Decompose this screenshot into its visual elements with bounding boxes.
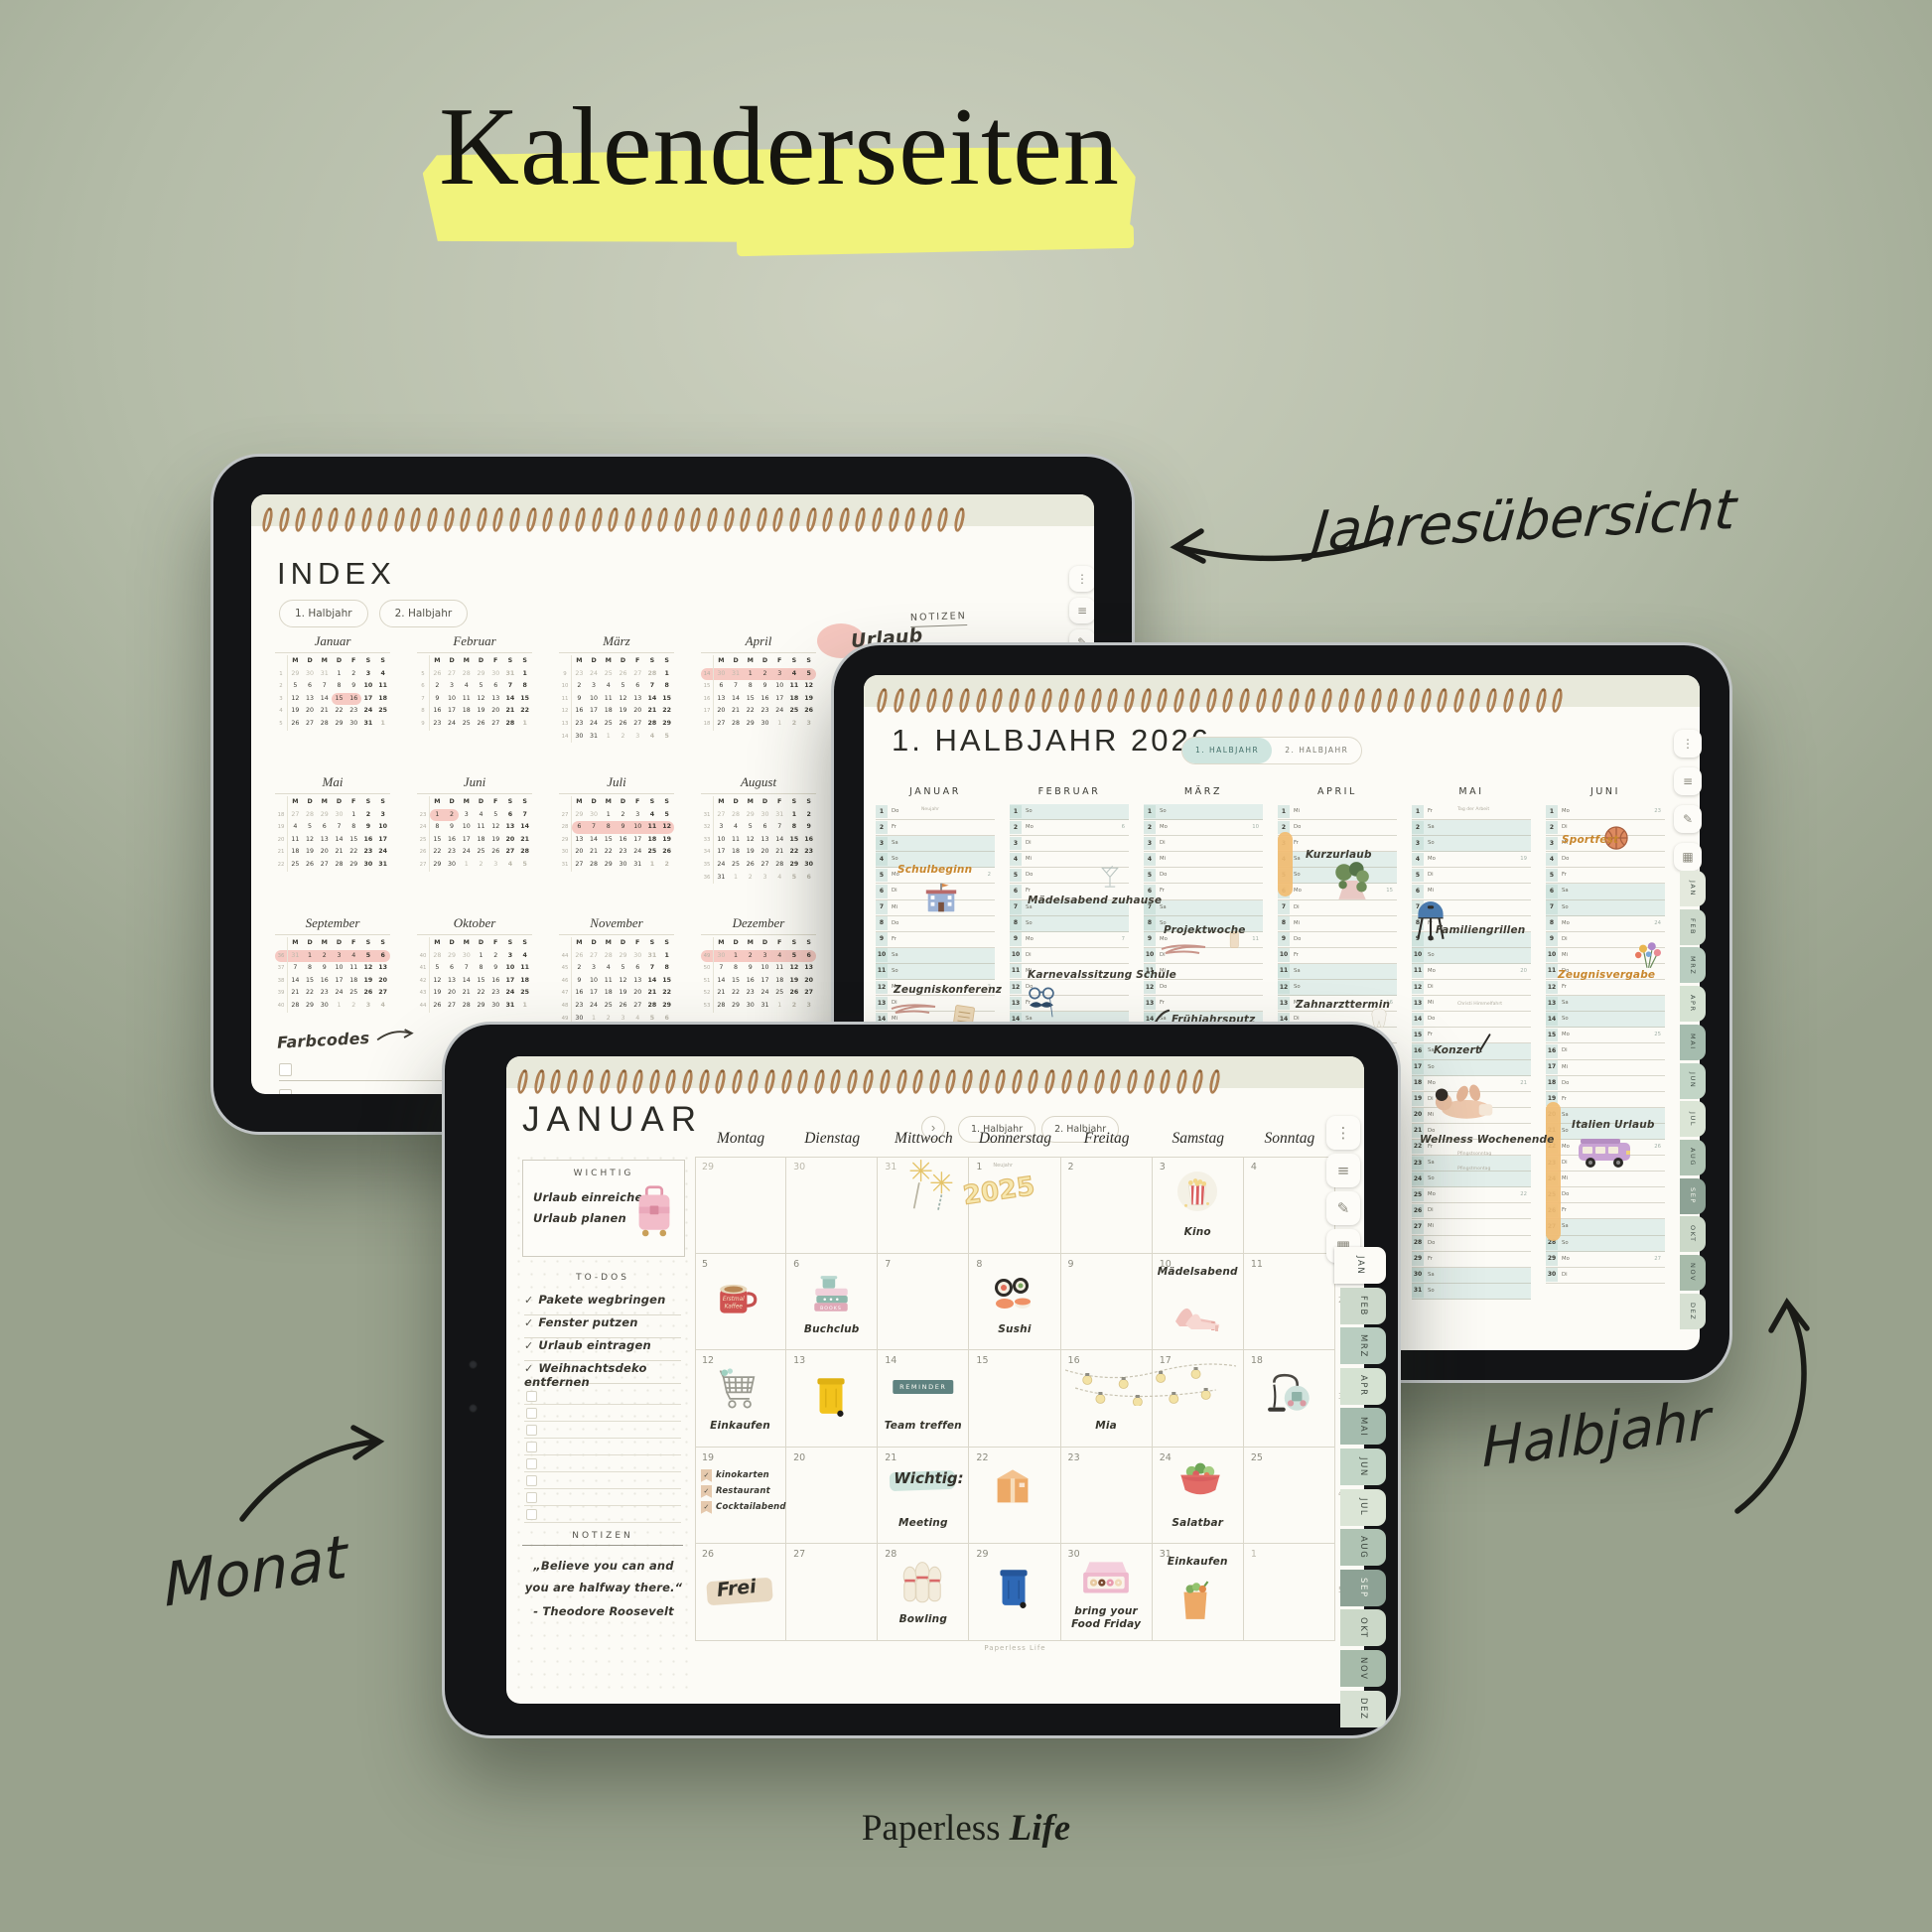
mini-day-cell[interactable]: 22 bbox=[303, 987, 318, 1000]
mini-day-cell[interactable]: 8 bbox=[729, 962, 744, 975]
mini-day-cell[interactable]: 1 bbox=[517, 718, 532, 731]
mini-day-cell[interactable]: 3 bbox=[801, 1000, 816, 1013]
mini-day-cell[interactable]: 9 bbox=[743, 962, 758, 975]
halbjahr-day-row[interactable]: 8So bbox=[1010, 916, 1129, 932]
mini-day-cell[interactable]: 29 bbox=[332, 718, 346, 731]
mini-day-cell[interactable]: 23 bbox=[488, 987, 503, 1000]
mini-day-cell[interactable]: 28 bbox=[729, 809, 744, 822]
mini-day-cell[interactable]: 24 bbox=[758, 987, 772, 1000]
mini-day-cell[interactable]: 10 bbox=[714, 834, 729, 847]
mini-day-cell[interactable]: 1 bbox=[332, 1000, 346, 1013]
halbjahr-day-row[interactable]: 15Mo25 bbox=[1546, 1028, 1665, 1043]
halbjahr-day-row[interactable]: 31So bbox=[1412, 1284, 1531, 1300]
mini-day-cell[interactable]: 13 bbox=[572, 834, 587, 847]
mini-day-cell[interactable]: 30 bbox=[616, 859, 630, 872]
mini-day-cell[interactable]: 5 bbox=[303, 821, 318, 834]
mini-day-cell[interactable]: 4 bbox=[787, 668, 802, 681]
mini-day-cell[interactable]: 7 bbox=[645, 962, 660, 975]
mini-day-cell[interactable]: 21 bbox=[503, 705, 518, 718]
mini-day-cell[interactable]: 14 bbox=[645, 693, 660, 706]
cell-checklist-item[interactable]: ✓Restaurant bbox=[701, 1485, 770, 1498]
mini-day-cell[interactable]: 6 bbox=[375, 950, 390, 963]
mini-day-cell[interactable]: 6 bbox=[714, 680, 729, 693]
mini-day-cell[interactable]: 22 bbox=[346, 846, 361, 859]
mini-day-cell[interactable]: 2 bbox=[616, 731, 630, 744]
mini-day-cell[interactable]: 31 bbox=[587, 731, 602, 744]
calendar-day-cell[interactable]: 10Mädelsabend bbox=[1153, 1254, 1244, 1351]
todo-empty-row[interactable] bbox=[524, 1489, 681, 1506]
mini-day-cell[interactable]: 29 bbox=[430, 859, 445, 872]
month-tab-jan[interactable]: JAN bbox=[1680, 871, 1706, 906]
mini-day-cell[interactable]: 22 bbox=[659, 705, 674, 718]
mini-day-cell[interactable]: 12 bbox=[659, 821, 674, 834]
mini-day-cell[interactable]: 27 bbox=[503, 846, 518, 859]
month-tab-aug[interactable]: AUG bbox=[1680, 1140, 1706, 1175]
mini-day-cell[interactable]: 25 bbox=[459, 718, 474, 731]
mini-day-cell[interactable]: 21 bbox=[645, 705, 660, 718]
mini-day-cell[interactable]: 10 bbox=[332, 962, 346, 975]
mini-day-cell[interactable]: 24 bbox=[772, 705, 787, 718]
mini-day-cell[interactable]: 1 bbox=[787, 809, 802, 822]
mini-day-cell[interactable]: 5 bbox=[787, 872, 802, 885]
mini-day-cell[interactable]: 30 bbox=[361, 859, 376, 872]
mini-day-cell[interactable]: 29 bbox=[317, 809, 332, 822]
mini-day-cell[interactable]: 5 bbox=[474, 680, 488, 693]
mini-day-cell[interactable]: 15 bbox=[659, 693, 674, 706]
mini-day-cell[interactable]: 21 bbox=[729, 705, 744, 718]
halbjahr-tab[interactable]: 1. HALBJAHR bbox=[1182, 738, 1272, 763]
more-icon[interactable]: ⋮ bbox=[1674, 730, 1702, 758]
mini-day-cell[interactable]: 30 bbox=[758, 809, 772, 822]
mini-day-cell[interactable]: 22 bbox=[787, 846, 802, 859]
calendar-day-cell[interactable]: 25 bbox=[1244, 1448, 1335, 1545]
cell-checklist-item[interactable]: ✓kinokarten bbox=[701, 1469, 769, 1482]
calendar-day-cell[interactable]: 28Bowling bbox=[878, 1544, 969, 1641]
mini-day-cell[interactable]: 19 bbox=[787, 975, 802, 988]
mini-day-cell[interactable]: 28 bbox=[288, 1000, 303, 1013]
calendar-day-cell[interactable]: 1Neujahr2025 bbox=[969, 1157, 1060, 1254]
mini-day-cell[interactable]: 9 bbox=[430, 693, 445, 706]
todo-empty-row[interactable] bbox=[524, 1405, 681, 1422]
mini-day-cell[interactable]: 19 bbox=[303, 846, 318, 859]
mini-day-cell[interactable]: 7 bbox=[459, 962, 474, 975]
calendar-day-cell[interactable]: 11 bbox=[1244, 1254, 1335, 1351]
mini-day-cell[interactable]: 17 bbox=[375, 834, 390, 847]
mini-day-cell[interactable]: 8 bbox=[303, 962, 318, 975]
mini-day-cell[interactable]: 23 bbox=[572, 1000, 587, 1013]
mini-day-cell[interactable]: 1 bbox=[601, 809, 616, 822]
mini-day-cell[interactable]: 17 bbox=[587, 705, 602, 718]
mini-day-cell[interactable]: 2 bbox=[430, 680, 445, 693]
mini-day-cell[interactable]: 14 bbox=[517, 821, 532, 834]
mini-day-cell[interactable]: 10 bbox=[587, 975, 602, 988]
mini-day-cell[interactable]: 2 bbox=[659, 859, 674, 872]
checkbox-icon[interactable] bbox=[279, 1063, 292, 1076]
mini-day-cell[interactable]: 15 bbox=[474, 975, 488, 988]
mini-day-cell[interactable]: 3 bbox=[630, 731, 645, 744]
mini-day-cell[interactable]: 8 bbox=[787, 821, 802, 834]
mini-day-cell[interactable]: 15 bbox=[787, 834, 802, 847]
mini-day-cell[interactable]: 13 bbox=[488, 693, 503, 706]
todo-empty-row[interactable] bbox=[524, 1439, 681, 1455]
mini-day-cell[interactable]: 1 bbox=[332, 668, 346, 681]
halbjahr-day-row[interactable]: 12Fr bbox=[1546, 980, 1665, 996]
calendar-day-cell[interactable]: 24Salatbar bbox=[1153, 1448, 1244, 1545]
mini-day-cell[interactable]: 28 bbox=[332, 859, 346, 872]
mini-day-cell[interactable]: 5 bbox=[659, 809, 674, 822]
halbjahr-day-row[interactable]: 18Do bbox=[1546, 1076, 1665, 1092]
more-icon[interactable]: ⋮ bbox=[1326, 1116, 1360, 1150]
mini-day-cell[interactable]: 6 bbox=[572, 821, 587, 834]
todo-empty-row[interactable] bbox=[524, 1455, 681, 1472]
halbjahr-day-row[interactable]: 4Mo19 bbox=[1412, 852, 1531, 868]
mini-day-cell[interactable]: 1 bbox=[659, 668, 674, 681]
halbjahr-day-row[interactable]: 28So bbox=[1546, 1236, 1665, 1252]
halbjahr-day-row[interactable]: 3Di bbox=[1010, 836, 1129, 852]
calendar-day-cell[interactable]: 4 bbox=[1244, 1157, 1335, 1254]
mini-day-cell[interactable]: 31 bbox=[288, 950, 303, 963]
mini-day-cell[interactable]: 14 bbox=[503, 693, 518, 706]
mini-day-cell[interactable]: 18 bbox=[474, 834, 488, 847]
halbjahr-day-row[interactable]: 16Di bbox=[1546, 1043, 1665, 1059]
halbjahr-day-row[interactable]: 2Do bbox=[1278, 820, 1397, 836]
halbjahr-day-row[interactable]: 3So bbox=[1412, 836, 1531, 852]
mini-day-cell[interactable]: 20 bbox=[801, 975, 816, 988]
mini-day-cell[interactable]: 25 bbox=[517, 987, 532, 1000]
mini-day-cell[interactable]: 14 bbox=[587, 834, 602, 847]
halbjahr-day-row[interactable]: 4Do bbox=[1546, 852, 1665, 868]
mini-day-cell[interactable]: 8 bbox=[659, 680, 674, 693]
halbjahr-day-row[interactable]: 17Mi bbox=[1546, 1060, 1665, 1076]
mini-day-cell[interactable]: 20 bbox=[445, 987, 460, 1000]
cell-checklist-item[interactable]: ✓Cocktailabend bbox=[701, 1501, 786, 1514]
mini-day-cell[interactable]: 29 bbox=[474, 668, 488, 681]
mini-day-cell[interactable]: 26 bbox=[801, 705, 816, 718]
mini-day-cell[interactable]: 27 bbox=[630, 1000, 645, 1013]
mini-day-cell[interactable]: 24 bbox=[375, 846, 390, 859]
mini-day-cell[interactable]: 19 bbox=[616, 705, 630, 718]
mini-day-cell[interactable]: 12 bbox=[288, 693, 303, 706]
mini-day-cell[interactable]: 30 bbox=[303, 668, 318, 681]
mini-day-cell[interactable]: 18 bbox=[601, 705, 616, 718]
mini-day-cell[interactable]: 14 bbox=[288, 975, 303, 988]
mini-day-cell[interactable]: 15 bbox=[659, 975, 674, 988]
mini-day-cell[interactable]: 16 bbox=[758, 693, 772, 706]
halbjahr-day-row[interactable]: 26Fr bbox=[1546, 1203, 1665, 1219]
halbjahr-day-row[interactable]: 14Do bbox=[1412, 1012, 1531, 1028]
mini-day-cell[interactable]: 14 bbox=[714, 975, 729, 988]
halbjahr-day-row[interactable]: 1Mo23 bbox=[1546, 804, 1665, 820]
mini-day-cell[interactable]: 17 bbox=[445, 705, 460, 718]
halbjahr-day-row[interactable]: 26Di bbox=[1412, 1203, 1531, 1219]
halbjahr-day-row[interactable]: 30Sa bbox=[1412, 1268, 1531, 1284]
calendar-day-cell[interactable]: 9 bbox=[1061, 1254, 1153, 1351]
halbjahr-day-row[interactable]: 10Fr bbox=[1278, 948, 1397, 964]
mini-day-cell[interactable]: 25 bbox=[787, 705, 802, 718]
checkbox-icon[interactable] bbox=[526, 1408, 537, 1419]
halbjahr-day-row[interactable]: 11So bbox=[876, 964, 995, 980]
month-tab-jul[interactable]: JUL bbox=[1340, 1489, 1386, 1526]
mini-day-cell[interactable]: 7 bbox=[772, 821, 787, 834]
mini-day-cell[interactable]: 23 bbox=[801, 846, 816, 859]
calendar-day-cell[interactable]: 16Mia bbox=[1061, 1350, 1153, 1448]
mini-day-cell[interactable]: 15 bbox=[303, 975, 318, 988]
mini-day-cell[interactable]: 1 bbox=[346, 809, 361, 822]
mini-day-cell[interactable]: 2 bbox=[361, 809, 376, 822]
mini-day-cell[interactable]: 18 bbox=[375, 693, 390, 706]
mini-day-cell[interactable]: 1 bbox=[729, 872, 744, 885]
mini-day-cell[interactable]: 4 bbox=[346, 950, 361, 963]
mini-day-cell[interactable]: 22 bbox=[729, 987, 744, 1000]
mini-day-cell[interactable]: 27 bbox=[587, 950, 602, 963]
mini-day-cell[interactable]: 3 bbox=[772, 668, 787, 681]
mini-day-cell[interactable]: 31 bbox=[630, 859, 645, 872]
halbjahr-day-row[interactable]: 6Sa bbox=[1546, 884, 1665, 899]
mini-day-cell[interactable]: 26 bbox=[361, 987, 376, 1000]
mini-day-cell[interactable]: 2 bbox=[743, 950, 758, 963]
halbjahr-day-row[interactable]: 24Mi bbox=[1546, 1172, 1665, 1187]
calendar-day-cell[interactable]: 31Einkaufen bbox=[1153, 1544, 1244, 1641]
mini-day-cell[interactable]: 20 bbox=[630, 987, 645, 1000]
mini-day-cell[interactable]: 23 bbox=[743, 987, 758, 1000]
mini-day-cell[interactable]: 14 bbox=[772, 834, 787, 847]
halbjahr-day-row[interactable]: 11Sa bbox=[1278, 964, 1397, 980]
mini-day-cell[interactable]: 20 bbox=[375, 975, 390, 988]
halbjahr-day-row[interactable]: 5Fr bbox=[1546, 868, 1665, 884]
mini-day-cell[interactable]: 14 bbox=[729, 693, 744, 706]
mini-day-cell[interactable]: 8 bbox=[743, 680, 758, 693]
mini-day-cell[interactable]: 13 bbox=[375, 962, 390, 975]
month-tab-jan[interactable]: JAN bbox=[1334, 1247, 1386, 1284]
checkbox-icon[interactable] bbox=[526, 1458, 537, 1469]
halbjahr-day-row[interactable]: 2Sa bbox=[1412, 820, 1531, 836]
mini-day-cell[interactable]: 1 bbox=[459, 859, 474, 872]
mini-day-cell[interactable]: 30 bbox=[445, 859, 460, 872]
month-tab-mai[interactable]: MAI bbox=[1680, 1025, 1706, 1060]
mini-day-cell[interactable]: 6 bbox=[488, 680, 503, 693]
mini-day-cell[interactable]: 12 bbox=[430, 975, 445, 988]
month-tab-nov[interactable]: NOV bbox=[1680, 1255, 1706, 1291]
list-icon[interactable]: ≡ bbox=[1674, 767, 1702, 795]
halbjahr-day-row[interactable]: 15Fr bbox=[1412, 1028, 1531, 1043]
mini-day-cell[interactable]: 28 bbox=[587, 859, 602, 872]
mini-day-cell[interactable]: 2 bbox=[758, 668, 772, 681]
checkbox-icon[interactable] bbox=[526, 1425, 537, 1436]
mini-day-cell[interactable]: 29 bbox=[659, 1000, 674, 1013]
mini-day-cell[interactable]: 12 bbox=[743, 834, 758, 847]
calendar-day-cell[interactable]: 30bring your Food Friday bbox=[1061, 1544, 1153, 1641]
mini-day-cell[interactable]: 5 bbox=[361, 950, 376, 963]
mini-day-cell[interactable]: 23 bbox=[346, 705, 361, 718]
mini-day-cell[interactable]: 1 bbox=[772, 718, 787, 731]
mini-day-cell[interactable]: 6 bbox=[659, 1013, 674, 1026]
checkbox-icon[interactable] bbox=[526, 1475, 537, 1486]
mini-day-cell[interactable]: 1 bbox=[517, 668, 532, 681]
mini-day-cell[interactable]: 13 bbox=[630, 693, 645, 706]
mini-day-cell[interactable]: 14 bbox=[317, 693, 332, 706]
mini-day-cell[interactable]: 30 bbox=[317, 1000, 332, 1013]
halbjahr-day-row[interactable]: 17So bbox=[1412, 1060, 1531, 1076]
checkbox-icon[interactable] bbox=[526, 1509, 537, 1520]
mini-day-cell[interactable]: 27 bbox=[488, 718, 503, 731]
halbjahr-day-row[interactable]: 8Do bbox=[876, 916, 995, 932]
month-tab-feb[interactable]: FEB bbox=[1680, 909, 1706, 945]
mini-day-cell[interactable]: 4 bbox=[459, 680, 474, 693]
checkbox-icon[interactable] bbox=[279, 1089, 292, 1094]
month-tab-mrz[interactable]: MRZ bbox=[1680, 947, 1706, 983]
mini-day-cell[interactable]: 26 bbox=[787, 987, 802, 1000]
mini-day-cell[interactable]: 11 bbox=[787, 680, 802, 693]
mini-day-cell[interactable]: 7 bbox=[503, 680, 518, 693]
mini-day-cell[interactable]: 1 bbox=[772, 1000, 787, 1013]
halbjahr-day-row[interactable]: 3Di bbox=[1144, 836, 1263, 852]
calendar-day-cell[interactable]: 2 bbox=[1061, 1157, 1153, 1254]
mini-day-cell[interactable]: 21 bbox=[645, 987, 660, 1000]
mini-day-cell[interactable]: 4 bbox=[503, 859, 518, 872]
mini-day-cell[interactable]: 31 bbox=[317, 668, 332, 681]
mini-day-cell[interactable]: 19 bbox=[616, 987, 630, 1000]
mini-day-cell[interactable]: 6 bbox=[303, 680, 318, 693]
mini-day-cell[interactable]: 17 bbox=[772, 693, 787, 706]
mini-day-cell[interactable]: 12 bbox=[361, 962, 376, 975]
mini-day-cell[interactable]: 3 bbox=[801, 718, 816, 731]
mini-day-cell[interactable]: 24 bbox=[630, 846, 645, 859]
mini-day-cell[interactable]: 15 bbox=[430, 834, 445, 847]
mini-day-cell[interactable]: 23 bbox=[616, 846, 630, 859]
halbjahr-day-row[interactable]: 10Sa bbox=[876, 948, 995, 964]
mini-day-cell[interactable]: 17 bbox=[361, 693, 376, 706]
mini-day-cell[interactable]: 11 bbox=[288, 834, 303, 847]
halbjahr-day-row[interactable]: 12So bbox=[1278, 980, 1397, 996]
mini-day-cell[interactable]: 15 bbox=[729, 975, 744, 988]
pen-icon[interactable]: ✎ bbox=[1674, 805, 1702, 833]
mini-day-cell[interactable]: 10 bbox=[459, 821, 474, 834]
mini-day-cell[interactable]: 11 bbox=[474, 821, 488, 834]
mini-day-cell[interactable]: 6 bbox=[801, 872, 816, 885]
month-tab-feb[interactable]: FEB bbox=[1340, 1288, 1386, 1324]
todo-item[interactable]: ✓Urlaub eintragen bbox=[524, 1338, 681, 1361]
mini-day-cell[interactable]: 1 bbox=[659, 950, 674, 963]
mini-day-cell[interactable]: 10 bbox=[630, 821, 645, 834]
mini-day-cell[interactable]: 5 bbox=[288, 680, 303, 693]
mini-day-cell[interactable]: 18 bbox=[772, 975, 787, 988]
mini-day-cell[interactable]: 30 bbox=[488, 668, 503, 681]
halbjahr-day-row[interactable]: 8Mo24 bbox=[1546, 916, 1665, 932]
mini-day-cell[interactable]: 13 bbox=[630, 975, 645, 988]
mini-day-cell[interactable]: 22 bbox=[474, 987, 488, 1000]
mini-day-cell[interactable]: 26 bbox=[659, 846, 674, 859]
mini-day-cell[interactable]: 29 bbox=[572, 809, 587, 822]
mini-day-cell[interactable]: 29 bbox=[743, 718, 758, 731]
mini-day-cell[interactable]: 1 bbox=[645, 859, 660, 872]
mini-day-cell[interactable]: 24 bbox=[361, 705, 376, 718]
mini-day-cell[interactable]: 9 bbox=[445, 821, 460, 834]
mini-day-cell[interactable]: 4 bbox=[645, 809, 660, 822]
mini-day-cell[interactable]: 20 bbox=[488, 705, 503, 718]
mini-day-cell[interactable]: 30 bbox=[630, 950, 645, 963]
mini-day-cell[interactable]: 16 bbox=[616, 834, 630, 847]
more-icon[interactable]: ⋮ bbox=[1069, 566, 1094, 592]
mini-day-cell[interactable]: 14 bbox=[645, 975, 660, 988]
mini-day-cell[interactable]: 26 bbox=[488, 846, 503, 859]
mini-day-cell[interactable]: 10 bbox=[503, 962, 518, 975]
mini-day-cell[interactable]: 29 bbox=[445, 950, 460, 963]
mini-day-cell[interactable]: 31 bbox=[503, 1000, 518, 1013]
mini-day-cell[interactable]: 19 bbox=[474, 705, 488, 718]
mini-day-cell[interactable]: 25 bbox=[346, 987, 361, 1000]
mini-day-cell[interactable]: 3 bbox=[488, 859, 503, 872]
mini-day-cell[interactable]: 25 bbox=[601, 718, 616, 731]
mini-day-cell[interactable]: 21 bbox=[517, 834, 532, 847]
mini-day-cell[interactable]: 25 bbox=[729, 859, 744, 872]
halbjahr-day-row[interactable]: 5Di bbox=[1412, 868, 1531, 884]
mini-day-cell[interactable]: 23 bbox=[361, 846, 376, 859]
mini-day-cell[interactable]: 30 bbox=[714, 668, 729, 681]
halbjahr-day-row[interactable]: 29Fr bbox=[1412, 1252, 1531, 1268]
mini-day-cell[interactable]: 10 bbox=[375, 821, 390, 834]
mini-day-cell[interactable]: 3 bbox=[332, 950, 346, 963]
mini-day-cell[interactable]: 14 bbox=[332, 834, 346, 847]
mini-day-cell[interactable]: 4 bbox=[517, 950, 532, 963]
month-tab-jul[interactable]: JUL bbox=[1680, 1101, 1706, 1137]
mini-day-cell[interactable]: 29 bbox=[346, 859, 361, 872]
mini-day-cell[interactable]: 2 bbox=[346, 1000, 361, 1013]
month-tab-okt[interactable]: OKT bbox=[1680, 1216, 1706, 1252]
mini-day-cell[interactable]: 17 bbox=[332, 975, 346, 988]
mini-day-cell[interactable]: 27 bbox=[758, 859, 772, 872]
mini-day-cell[interactable]: 4 bbox=[772, 950, 787, 963]
mini-day-cell[interactable]: 9 bbox=[346, 680, 361, 693]
calendar-day-cell[interactable]: 30 bbox=[786, 1157, 878, 1254]
index-tab[interactable]: 2. Halbjahr bbox=[379, 600, 469, 627]
halbjahr-day-row[interactable]: 9Do bbox=[1278, 932, 1397, 948]
mini-day-cell[interactable]: 16 bbox=[346, 693, 361, 706]
calendar-day-cell[interactable]: 27 bbox=[786, 1544, 878, 1641]
halbjahr-day-row[interactable]: 6Mi bbox=[1412, 884, 1531, 899]
mini-day-cell[interactable]: 11 bbox=[729, 834, 744, 847]
mini-day-cell[interactable]: 16 bbox=[361, 834, 376, 847]
mini-day-cell[interactable]: 3 bbox=[361, 668, 376, 681]
mini-day-cell[interactable]: 25 bbox=[375, 705, 390, 718]
mini-day-cell[interactable]: 17 bbox=[714, 846, 729, 859]
mini-day-cell[interactable]: 13 bbox=[303, 693, 318, 706]
mini-day-cell[interactable]: 29 bbox=[288, 668, 303, 681]
mini-day-cell[interactable]: 18 bbox=[459, 705, 474, 718]
mini-day-cell[interactable]: 21 bbox=[587, 846, 602, 859]
mini-day-cell[interactable]: 6 bbox=[317, 821, 332, 834]
mini-day-cell[interactable]: 19 bbox=[659, 834, 674, 847]
mini-day-cell[interactable]: 19 bbox=[288, 705, 303, 718]
mini-day-cell[interactable]: 13 bbox=[445, 975, 460, 988]
mini-day-cell[interactable]: 2 bbox=[601, 1013, 616, 1026]
month-tab-okt[interactable]: OKT bbox=[1340, 1609, 1386, 1646]
mini-day-cell[interactable]: 12 bbox=[787, 962, 802, 975]
mini-day-cell[interactable]: 23 bbox=[445, 846, 460, 859]
mini-day-cell[interactable]: 25 bbox=[645, 846, 660, 859]
mini-day-cell[interactable]: 7 bbox=[587, 821, 602, 834]
mini-day-cell[interactable]: 18 bbox=[346, 975, 361, 988]
mini-day-cell[interactable]: 1 bbox=[303, 950, 318, 963]
mini-day-cell[interactable]: 3 bbox=[587, 962, 602, 975]
mini-day-cell[interactable]: 26 bbox=[303, 859, 318, 872]
mini-day-cell[interactable]: 26 bbox=[743, 859, 758, 872]
mini-day-cell[interactable]: 21 bbox=[332, 846, 346, 859]
mini-day-cell[interactable]: 20 bbox=[317, 846, 332, 859]
index-tab[interactable]: 1. Halbjahr bbox=[279, 600, 368, 627]
mini-day-cell[interactable]: 14 bbox=[459, 975, 474, 988]
calendar-day-cell[interactable]: 14REMINDERTeam treffen bbox=[878, 1350, 969, 1448]
calendar-day-cell[interactable]: 5ErstmalKaffee bbox=[695, 1254, 786, 1351]
